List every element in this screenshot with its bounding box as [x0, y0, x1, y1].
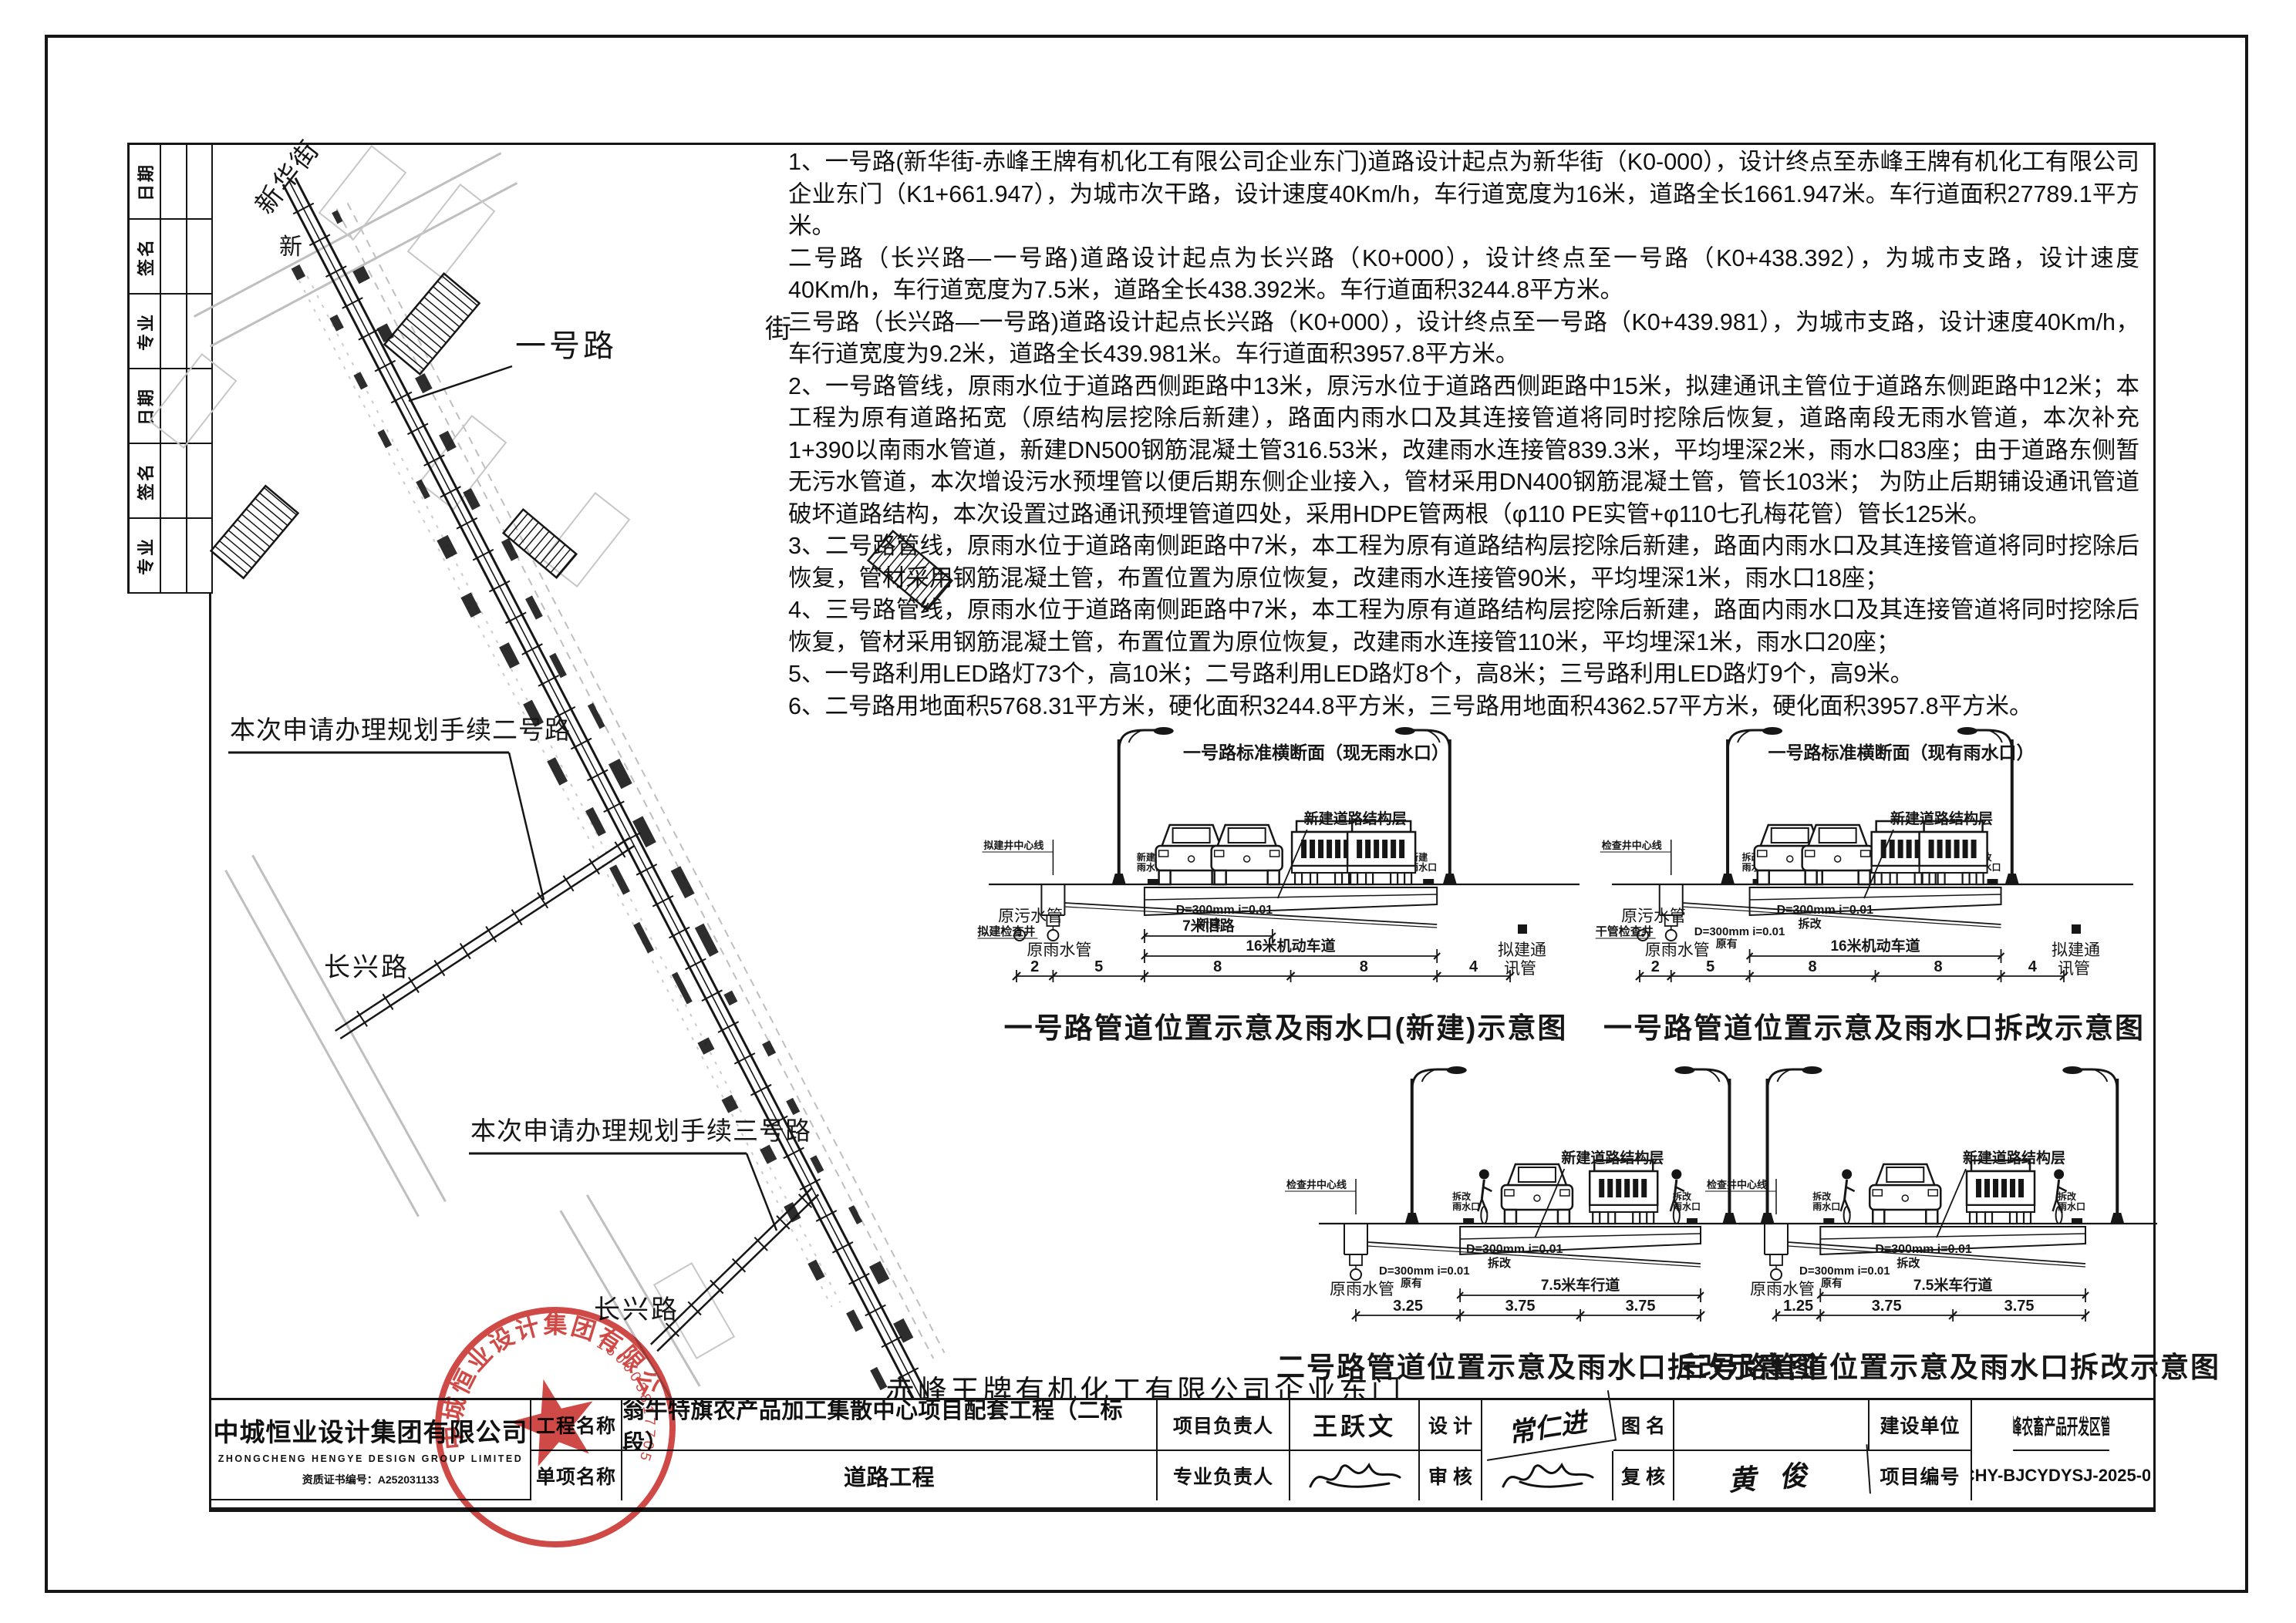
- changxing-road-label: 长兴路: [324, 953, 410, 982]
- svg-text:8: 8: [1934, 958, 1942, 975]
- svg-text:一号路: 一号路: [515, 329, 617, 363]
- svg-text:7.5米车行道: 7.5米车行道: [1913, 1276, 1992, 1294]
- project-no-label: 项目编号: [1870, 1451, 1972, 1500]
- svg-text:雨水口: 雨水口: [1452, 1200, 1480, 1212]
- structure-layer-label: 新建道路结构层: [1304, 810, 1407, 827]
- svg-text:2: 2: [1651, 958, 1660, 975]
- svg-text:4: 4: [1469, 958, 1478, 975]
- figure-name-label: 图 名: [1613, 1400, 1674, 1451]
- project-no-value: ZCHY-BJCYDYSJ-2025-001: [1972, 1451, 2150, 1500]
- reviewer-signature: [1482, 1451, 1613, 1500]
- svg-text:检查井中心线: 检查井中心线: [1602, 840, 1662, 851]
- road2-callout: 本次申请办理规划手续二号路: [228, 716, 571, 900]
- svg-text:8: 8: [1360, 958, 1368, 975]
- project-name-value: 翁牛特旗农产品加工集散中心项目配套工程（二标段）: [622, 1400, 1158, 1451]
- svg-text:1.25: 1.25: [1783, 1298, 1813, 1315]
- truck: [1347, 821, 1415, 884]
- svg-text:3.75: 3.75: [2004, 1298, 2035, 1315]
- svg-text:拆改: 拆改: [1896, 1256, 1920, 1270]
- section-title: 三号路管道位置示意及雨水口拆改示意图: [1679, 1352, 2220, 1383]
- svg-text:3.25: 3.25: [1393, 1298, 1423, 1315]
- note-paragraph: 二号路（长兴路—一号路)道路设计起点为长兴路（K0+000），设计终点至一号路（…: [788, 243, 2139, 307]
- design-notes: 1、一号路(新华街-赤峰王牌有机化工有限公司企业东门)道路设计起点为新华街（K0…: [788, 146, 2139, 722]
- svg-text:D=300mm i=0.01: D=300mm i=0.01: [1875, 1243, 1972, 1256]
- figure-name-value: [1674, 1400, 1870, 1451]
- signature-scribble: [1304, 1456, 1404, 1496]
- road3-callout: 本次申请办理规划手续三号路: [469, 1116, 811, 1231]
- svg-text:拆改: 拆改: [1812, 1190, 1832, 1202]
- svg-text:本次申请办理规划手续三号路: 本次申请办理规划手续三号路: [470, 1116, 811, 1145]
- svg-text:拆改: 拆改: [1799, 917, 1822, 931]
- note-paragraph: 4、三号路管线，原雨水位于道路南侧距路中7米，本工程为原有道路结构层挖除后新建，…: [788, 594, 2139, 658]
- svg-text:拟建井中心线: 拟建井中心线: [983, 840, 1043, 851]
- section-header: 一号路标准横断面（现有雨水口）: [1768, 742, 2035, 763]
- svg-text:原有: 原有: [1821, 1277, 1843, 1289]
- cross-section: 新建雨水口新建雨水口原雨水管拟建井中心线原污水管拟建检查井D=300mm i=0…: [977, 727, 1580, 1044]
- design-stage-label: 设 计: [1420, 1400, 1482, 1451]
- svg-text:7米旧路: 7米旧路: [1182, 917, 1236, 934]
- seal-star: [502, 1369, 605, 1470]
- rain-pipe-label: 原雨水管: [1330, 1281, 1394, 1298]
- svg-text:新建: 新建: [1137, 851, 1156, 863]
- svg-text:拆改: 拆改: [2058, 1190, 2077, 1202]
- street-name-xinhua: 新华街: [250, 134, 325, 220]
- note-paragraph: 5、一号路利用LED路灯73个，高10米；二号路利用LED路灯8个，高8米；三号…: [788, 658, 2139, 691]
- sewer-pipe-label: 原污水管: [998, 907, 1063, 925]
- road1-label: 一号路: [409, 329, 617, 401]
- svg-text:8: 8: [1213, 958, 1222, 975]
- svg-text:4: 4: [2028, 958, 2038, 975]
- signature-scribble: [1497, 1456, 1597, 1496]
- svg-text:D=300mm i=0.01: D=300mm i=0.01: [1799, 1264, 1890, 1278]
- svg-text:讯管: 讯管: [2058, 960, 2090, 978]
- review-stage-label: 审 核: [1420, 1451, 1482, 1500]
- svg-text:7.5米车行道: 7.5米车行道: [1541, 1276, 1620, 1294]
- truck: [1920, 821, 1988, 884]
- drawing-sheet: { "revision_strip": { "labels": ["日期", "…: [0, 0, 2296, 1623]
- section-header: 一号路标准横断面（现无雨水口）: [1183, 742, 1449, 763]
- svg-text:8: 8: [1809, 958, 1817, 975]
- svg-text:讯管: 讯管: [1504, 960, 1536, 978]
- note-paragraph: 6、二号路用地面积5768.31平方米，硬化面积3244.8平方米，三号路用地面…: [788, 691, 2139, 723]
- rain-pipe-label: 原雨水管: [1750, 1281, 1815, 1298]
- rain-pipe-label: 原雨水管: [1027, 941, 1091, 959]
- structure-layer-label: 新建道路结构层: [1890, 810, 1993, 827]
- svg-text:3.75: 3.75: [1626, 1298, 1656, 1315]
- cyclist: [1478, 1170, 1492, 1224]
- svg-text:原有: 原有: [1716, 938, 1738, 950]
- svg-text:检查井中心线: 检查井中心线: [1286, 1179, 1347, 1190]
- discipline-leader-label: 专业负责人: [1158, 1451, 1290, 1500]
- svg-text:D=300mm i=0.01: D=300mm i=0.01: [1777, 904, 1874, 917]
- svg-text:2: 2: [1030, 958, 1039, 975]
- svg-text:3.75: 3.75: [1872, 1298, 1902, 1315]
- svg-text:16米机动车道: 16米机动车道: [1246, 937, 1335, 955]
- svg-text:D=300mm i=0.01: D=300mm i=0.01: [1694, 925, 1785, 938]
- note-paragraph: 三号路（长兴路—一号路)道路设计起点长兴路（K0+000），设计终点至一号路（K…: [788, 307, 2139, 371]
- note-paragraph: 1、一号路(新华街-赤峰王牌有机化工有限公司企业东门)道路设计起点为新华街（K0…: [788, 146, 2139, 243]
- truck: [1967, 1160, 2035, 1224]
- cyclist: [1841, 1170, 1855, 1224]
- svg-text:D=300mm i=0.01: D=300mm i=0.01: [1466, 1243, 1563, 1256]
- svg-text:原有: 原有: [1401, 1277, 1422, 1289]
- svg-text:拟建通: 拟建通: [1498, 941, 1546, 959]
- car-sedan: [1802, 825, 1873, 884]
- svg-text:雨水口: 雨水口: [1812, 1200, 1840, 1212]
- truck: [1590, 1160, 1657, 1224]
- discipline-leader-signature: [1290, 1451, 1420, 1500]
- sewer-pipe-label: 原污水管: [1621, 907, 1686, 925]
- recheck-name: 黄 俊: [1673, 1444, 1871, 1507]
- note-paragraph: 2、一号路管线，原雨水位于道路西侧距路中13米，原污水位于道路西侧距路中15米，…: [788, 371, 2139, 531]
- rain-pipe-label: 原雨水管: [1645, 941, 1710, 959]
- svg-text:本次申请办理规划手续二号路: 本次申请办理规划手续二号路: [230, 716, 571, 744]
- car-sedan: [1212, 825, 1283, 884]
- svg-text:3.75: 3.75: [1505, 1298, 1536, 1315]
- cross-section: 拆改雨水口拆改雨水口原雨水管检查井中心线D=300mm i=0.01拆改D=30…: [1679, 1066, 2220, 1383]
- structure-layer-label: 新建道路结构层: [1963, 1149, 2065, 1167]
- structure-layer-label: 新建道路结构层: [1561, 1149, 1664, 1167]
- cross-section: 拆改雨水口拆改雨水口原雨水管检查井中心线D=300mm i=0.01拆改D=30…: [1276, 1066, 1818, 1383]
- svg-text:检查井中心线: 检查井中心线: [1707, 1179, 1767, 1190]
- street-char-jie: 街: [765, 315, 791, 344]
- build-unit-value: 内蒙古赤峰农畜产品开发区管理委员会: [2013, 1400, 2109, 1451]
- note-paragraph: 3、二号路管线，原雨水位于道路南侧距路中7米，本工程为原有道路结构层挖除后新建，…: [788, 530, 2139, 594]
- project-leader-name: 王跃文: [1290, 1400, 1420, 1451]
- build-unit-label: 建设单位: [1870, 1400, 1972, 1451]
- street-char-xin: 新: [279, 234, 302, 260]
- svg-text:拆改: 拆改: [1452, 1190, 1472, 1202]
- svg-text:5: 5: [1706, 958, 1714, 975]
- company-cert-no: 资质证书编号：A252031133: [302, 1472, 439, 1487]
- svg-text:干管检查井: 干管检查井: [1596, 924, 1654, 938]
- section-title: 一号路管道位置示意及雨水口拆改示意图: [1603, 1012, 2145, 1044]
- svg-text:拟建通: 拟建通: [2052, 941, 2100, 959]
- svg-text:拟建检查井: 拟建检查井: [977, 924, 1035, 938]
- cross-section: 拆改雨水口拆改雨水口原雨水管检查井中心线原污水管干管检查井D=300mm i=0…: [1596, 727, 2145, 1044]
- svg-text:D=300mm i=0.01: D=300mm i=0.01: [1379, 1264, 1470, 1278]
- svg-text:D=300mm i=0.01: D=300mm i=0.01: [1176, 904, 1273, 917]
- project-leader-label: 项目负责人: [1158, 1400, 1290, 1451]
- car-sedan: [1870, 1164, 1940, 1224]
- svg-text:5: 5: [1094, 958, 1103, 975]
- svg-text:16米机动车道: 16米机动车道: [1830, 937, 1920, 955]
- recheck-label: 复 核: [1613, 1451, 1674, 1500]
- svg-text:拆改: 拆改: [1488, 1256, 1512, 1270]
- section-title: 一号路管道位置示意及雨水口(新建)示意图: [1004, 1012, 1568, 1044]
